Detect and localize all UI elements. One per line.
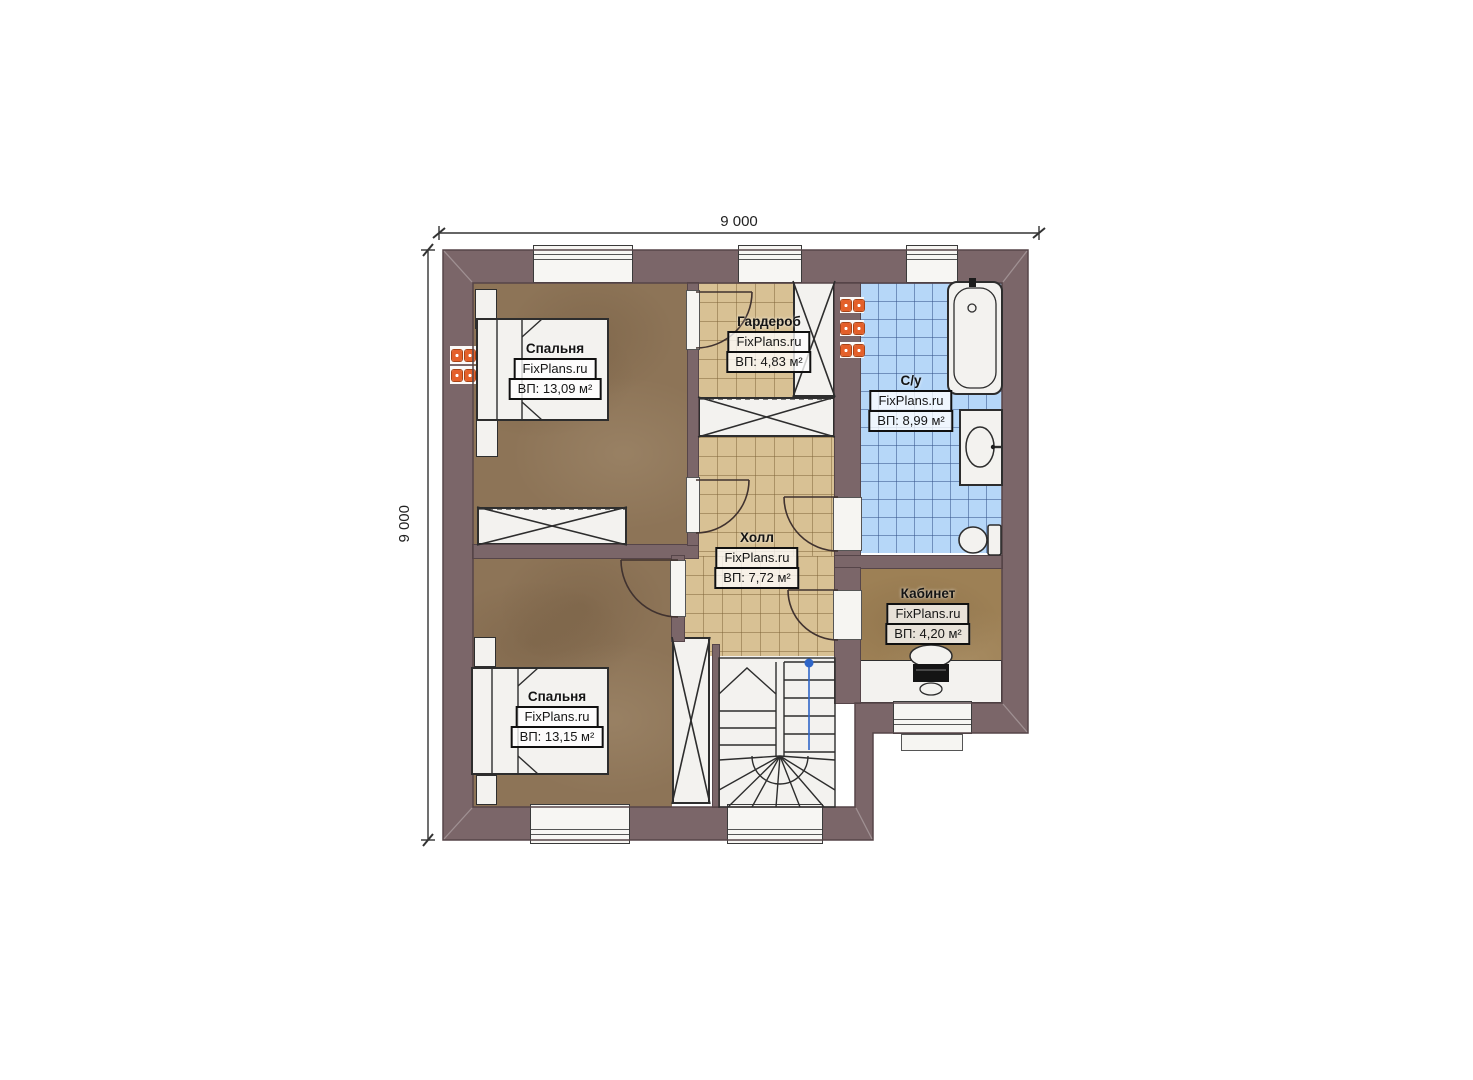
wall-step xyxy=(855,733,873,840)
room-area: ВП: 13,09 м² xyxy=(509,378,602,400)
watermark-fixplans: FixPlans.ru xyxy=(727,331,810,353)
window-bedroom2 xyxy=(530,804,630,844)
door-opening-bedroom2 xyxy=(670,560,686,617)
window-office xyxy=(893,701,972,734)
bedroom1-wardrobe-cabinet xyxy=(477,507,627,545)
room-area: ВП: 8,99 м² xyxy=(868,410,953,432)
room-name: Спальня xyxy=(528,689,586,704)
room-name: Гардероб xyxy=(737,314,801,329)
radiator-icon xyxy=(840,320,864,336)
window-bathroom xyxy=(906,245,958,283)
door-opening-bathroom xyxy=(833,497,862,551)
staircase-area xyxy=(719,656,835,807)
watermark-fixplans: FixPlans.ru xyxy=(513,358,596,380)
wall-right xyxy=(1002,250,1028,733)
room-label-hall: Холл FixPlans.ru ВП: 7,72 м² xyxy=(714,530,799,589)
wall-bedrooms-divider xyxy=(473,545,698,558)
window-bedroom1 xyxy=(533,245,633,283)
room-label-office: Кабинет FixPlans.ru ВП: 4,20 м² xyxy=(885,586,970,645)
room-area: ВП: 7,72 м² xyxy=(714,567,799,589)
wall-bedroom1-right xyxy=(688,533,698,545)
wall-bedroom1-right xyxy=(688,350,698,477)
wall-office-left xyxy=(835,640,860,703)
wall-left xyxy=(443,250,473,840)
door-opening-wardrobe xyxy=(686,290,700,350)
room-area: ВП: 4,83 м² xyxy=(726,351,811,373)
room-label-bathroom: С/у FixPlans.ru ВП: 8,99 м² xyxy=(868,373,953,432)
bedroom2-nightstand-top xyxy=(474,637,496,667)
bedroom2-floor xyxy=(473,556,672,807)
wall-bathroom-office xyxy=(835,556,1002,568)
room-name: Кабинет xyxy=(901,586,956,601)
room-label-bedroom-1: Спальня FixPlans.ru ВП: 13,09 м² xyxy=(509,341,602,400)
dimension-height-label: 9 000 xyxy=(396,505,413,543)
wall-bedroom2-right xyxy=(672,617,684,641)
wall-bedroom1-right xyxy=(688,283,698,290)
wall-office-left xyxy=(835,568,860,590)
radiator-icon xyxy=(840,342,864,358)
room-label-bedroom-2: Спальня FixPlans.ru ВП: 13,15 м² xyxy=(511,689,604,748)
room-label-wardrobe: Гардероб FixPlans.ru ВП: 4,83 м² xyxy=(726,314,811,373)
watermark-fixplans: FixPlans.ru xyxy=(886,603,969,625)
wall-hall-bathroom xyxy=(835,283,860,497)
dimension-width-label: 9 000 xyxy=(720,213,758,230)
bedroom1-nightstand-bottom xyxy=(476,420,498,457)
bedroom2-nightstand-bottom xyxy=(476,775,497,805)
bedroom2-wardrobe-cabinet xyxy=(672,637,710,804)
office-desk xyxy=(860,660,1002,703)
radiator-icon xyxy=(450,366,477,384)
window-stairs xyxy=(727,804,823,844)
wall-stairs-left xyxy=(713,645,719,807)
radiator-icon xyxy=(840,297,864,313)
watermark-fixplans: FixPlans.ru xyxy=(869,390,952,412)
room-area: ВП: 13,15 м² xyxy=(511,726,604,748)
window-wardrobe xyxy=(738,245,802,283)
door-opening-bedroom1 xyxy=(686,477,700,533)
room-name: Холл xyxy=(740,530,774,545)
radiator-icon xyxy=(450,346,477,364)
watermark-fixplans: FixPlans.ru xyxy=(515,706,598,728)
bedroom1-floor xyxy=(473,283,688,545)
window-office-sill xyxy=(901,734,963,751)
room-name: Спальня xyxy=(526,341,584,356)
room-area: ВП: 4,20 м² xyxy=(885,623,970,645)
watermark-fixplans: FixPlans.ru xyxy=(715,547,798,569)
wardrobe-closet-bottom xyxy=(698,397,835,437)
bedroom1-nightstand-top xyxy=(475,289,497,329)
door-opening-office xyxy=(833,590,862,640)
floor-plan-canvas: 9 000 9 000 xyxy=(0,0,1473,1080)
room-name: С/у xyxy=(900,373,921,388)
